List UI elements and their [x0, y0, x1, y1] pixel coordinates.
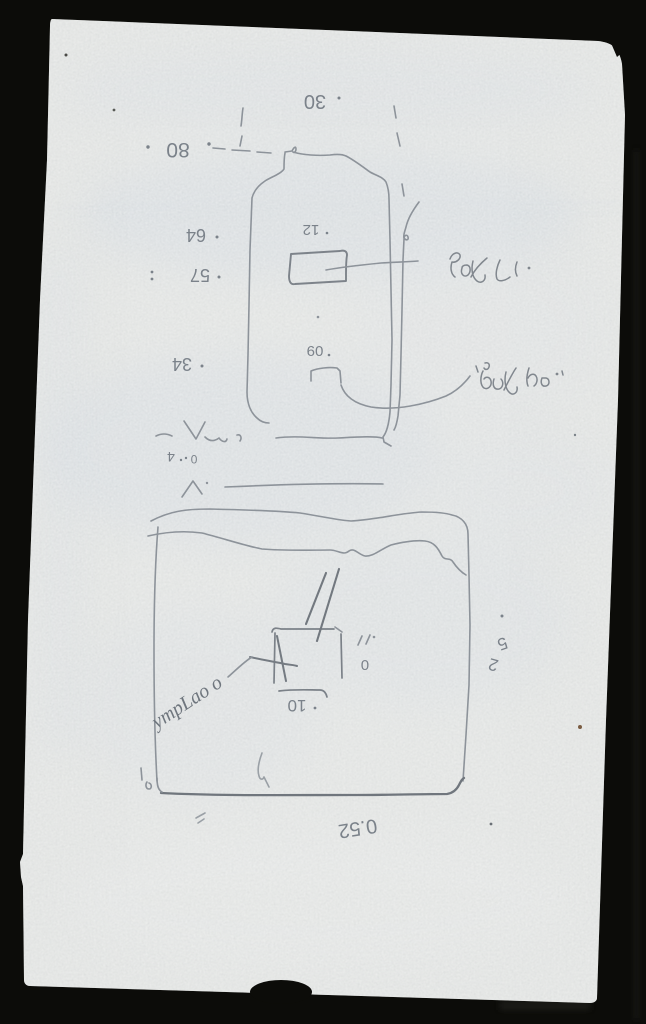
svg-text:34: 34	[172, 354, 192, 374]
svg-text:80: 80	[166, 138, 189, 161]
svg-text:09: 09	[307, 342, 324, 359]
svg-text:4: 4	[167, 449, 175, 465]
svg-text:57: 57	[190, 265, 210, 285]
svg-text:64: 64	[186, 225, 206, 245]
svg-text:12: 12	[303, 221, 320, 238]
svg-text:0: 0	[190, 452, 197, 466]
svg-text:10: 10	[288, 696, 307, 715]
svg-text:30: 30	[304, 90, 326, 112]
svg-text:0: 0	[361, 656, 369, 673]
